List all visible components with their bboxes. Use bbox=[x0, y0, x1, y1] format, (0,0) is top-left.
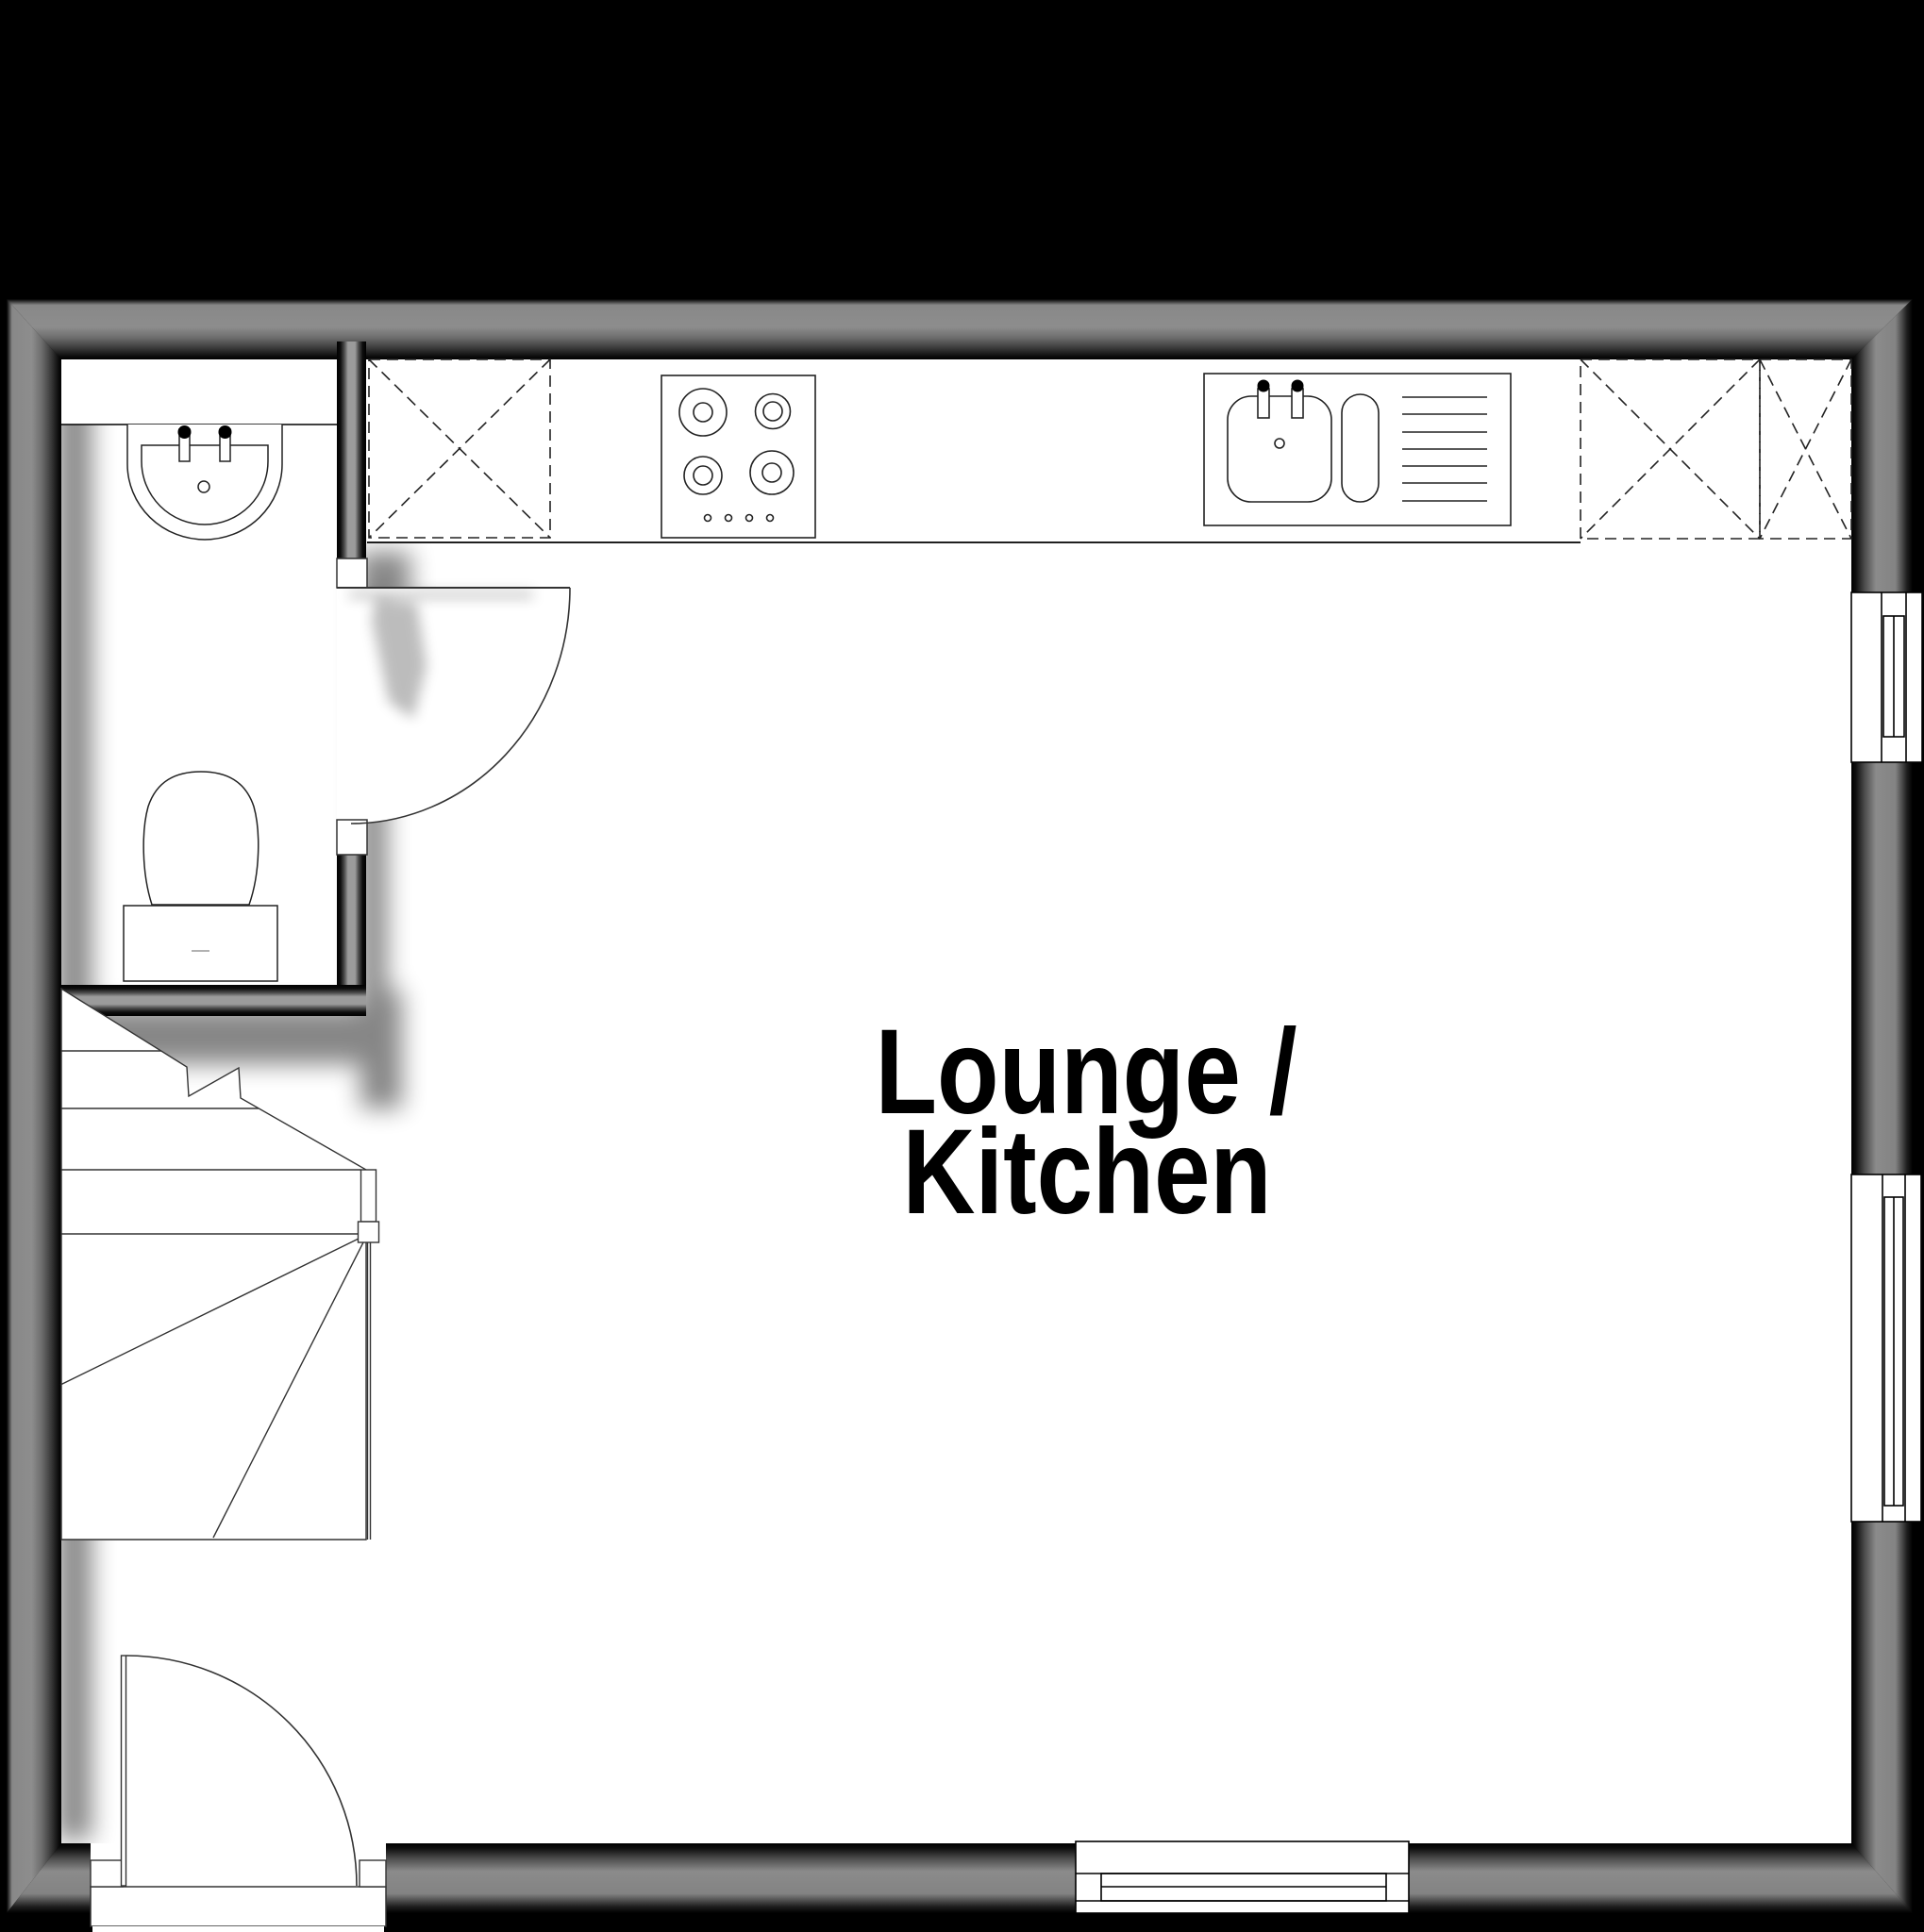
svg-text:Kitchen: Kitchen bbox=[903, 1105, 1272, 1240]
